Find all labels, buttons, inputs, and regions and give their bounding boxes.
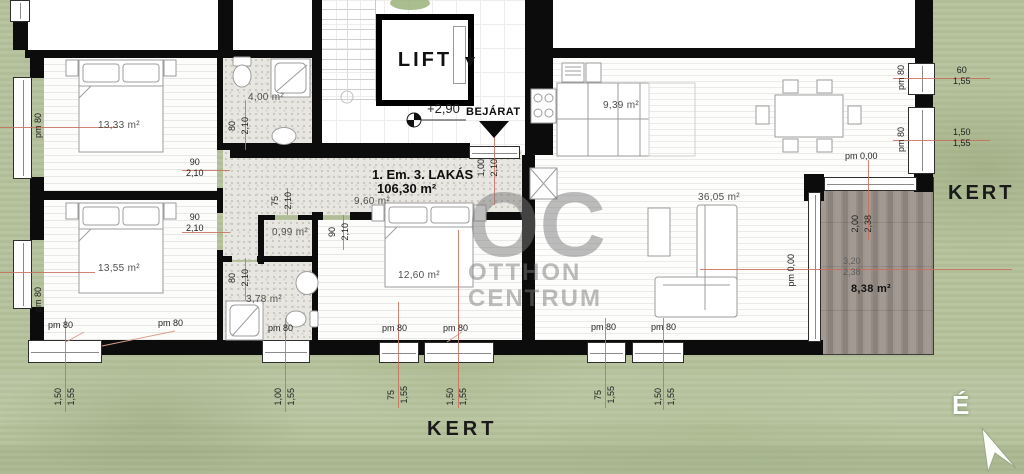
door-dim: 902,10 [186, 157, 204, 179]
window-dim: 1,501,55 [653, 378, 677, 416]
door-dim: 902,10 [186, 212, 204, 234]
door-dim: 802,10 [227, 110, 251, 142]
dim-label: pm 80 [33, 284, 44, 316]
parapet-label: pm 80 [591, 322, 616, 333]
shower [226, 301, 263, 340]
washbasin [296, 272, 318, 295]
dim-label: pm 80 [896, 124, 907, 156]
level-label: +2,90 [427, 103, 460, 114]
terrace-dim: 3,202,38 [843, 256, 861, 278]
room-area-label: 13,33 m² [98, 120, 140, 131]
stair-landing-circle [341, 91, 353, 103]
window-dim: 751,55 [386, 378, 410, 412]
parapet-label: pm 80 [382, 323, 407, 334]
door-dim: 802,10 [227, 262, 251, 294]
apartment-title-line1: 1. Em. 3. LAKÁS [372, 168, 473, 182]
room-area-label: 8,38 m² [851, 283, 891, 295]
room-area-label: 13,55 m² [98, 263, 140, 274]
window-dim: 751,55 [593, 378, 617, 412]
plant [390, 0, 430, 10]
apartment-title: 1. Em. 3. LAKÁS 106,30 m² [372, 168, 473, 196]
north-arrow-icon [982, 428, 1016, 472]
window-dim: 1,501,55 [445, 378, 469, 416]
floor-plan: LIFT [0, 0, 1024, 474]
dim-line [0, 272, 95, 273]
room-area-label: 12,60 m² [398, 270, 440, 281]
window-dim: 1,001,55 [273, 378, 297, 416]
door-dim: 902,10 [327, 216, 351, 248]
entrance-marker [479, 121, 509, 138]
room-area-label: 9,60 m² [354, 196, 390, 207]
garden-label-right: KERT [948, 182, 1014, 205]
dim-label: pm 0,00 [786, 250, 797, 290]
terrace-dim: 2,002,38 [850, 207, 874, 241]
dim-label: pm 80 [896, 62, 907, 94]
door-dim: 752,10 [270, 186, 294, 216]
window-dim: 1,501,55 [53, 378, 77, 416]
room-area-label: 4,00 m² [248, 92, 284, 103]
window-dim: 601,55 [953, 65, 971, 87]
bed [66, 203, 176, 293]
garden-label-bottom: KERT [427, 418, 497, 441]
entrance-label: BEJÁRAT [466, 107, 521, 118]
washbasin [272, 128, 296, 145]
bed [66, 60, 176, 152]
parapet-label: pm 80 [268, 323, 293, 334]
compass-north-label: É [952, 390, 969, 421]
stove [531, 89, 556, 123]
parapet-label: pm 0,00 [845, 151, 878, 162]
room-area-label: 3,78 m² [246, 294, 282, 305]
lift-arrow-icon [465, 38, 475, 67]
dim-line [893, 78, 990, 79]
room-area-label: 9,39 m² [603, 100, 639, 111]
apartment-title-line2: 106,30 m² [372, 182, 473, 196]
room-area-label: 0,99 m² [272, 227, 308, 238]
dim-label: pm 80 [33, 110, 44, 142]
door-dim: 1,002,10 [476, 151, 500, 185]
fridge [530, 168, 557, 199]
tv-cabinet [648, 208, 670, 256]
dining-table [756, 80, 861, 152]
parapet-label: pm 80 [443, 323, 468, 334]
parapet-label: pm 80 [651, 322, 676, 333]
parapet-label: pm 80 [158, 318, 183, 329]
parapet-label: pm 80 [48, 320, 73, 331]
room-area-label: 36,05 m² [698, 192, 740, 203]
dim-line [893, 140, 990, 141]
toilet [233, 57, 251, 87]
window-dim: 1,501,55 [953, 127, 971, 149]
